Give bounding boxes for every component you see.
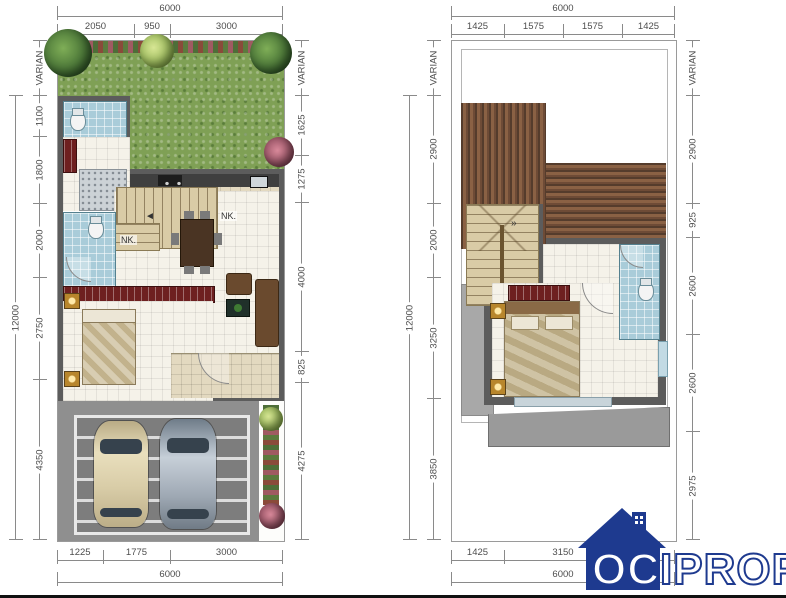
dim-label: 825: [297, 356, 308, 378]
sink-icon: [250, 176, 268, 188]
dim-label: 1575: [521, 21, 546, 32]
dim-segment: 6000: [57, 570, 283, 586]
dim-label: 6000: [550, 569, 575, 580]
gf-dim-top-total: 6000: [57, 4, 283, 20]
wardrobe-strip: [508, 285, 570, 301]
bed: [504, 301, 580, 397]
rear-window: [167, 509, 210, 519]
windshield: [100, 439, 141, 454]
dim-label: 2975: [688, 472, 699, 499]
wardrobe: [63, 139, 77, 173]
dim-label: 2050: [83, 21, 108, 32]
dim-segment: 1425: [622, 22, 675, 38]
dim-segment: 1575: [563, 22, 622, 38]
dim-segment: 2900: [426, 95, 442, 203]
carport: [58, 401, 259, 541]
bed-pillows: [83, 310, 135, 323]
dim-segment: 6000: [451, 4, 675, 20]
dim-segment: 6000: [57, 4, 283, 20]
dim-segment: 1775: [103, 548, 170, 564]
bed-headboard: [505, 302, 579, 314]
dim-label: 1425: [465, 547, 490, 558]
wall: [279, 169, 284, 401]
dim-segment: 3000: [170, 548, 283, 564]
dim-label: 2000: [429, 226, 440, 253]
dim-label: 1625: [297, 111, 308, 138]
stairs-up-label: NK.: [220, 211, 237, 221]
gf-dim-bottom-total: 6000: [57, 570, 283, 586]
dim-label: 2600: [688, 272, 699, 299]
lamp-icon: [64, 371, 80, 387]
dim-segment: 2000: [32, 203, 48, 277]
lamp-icon: [64, 293, 80, 309]
dim-label: 2900: [688, 135, 699, 162]
shrub: [259, 503, 285, 529]
dim-label: 3150: [550, 547, 575, 558]
upper-bathroom: [619, 244, 660, 340]
side-garden: [130, 96, 284, 169]
lamp-icon: [490, 379, 506, 395]
stairs-rail: [500, 225, 504, 285]
ground-floor-plan: ◄ NK. NK.: [57, 40, 285, 542]
dim-segment: 1275: [294, 155, 310, 202]
dim-segment: 12000: [402, 95, 418, 540]
stairs-direction-arrow: ◄: [145, 212, 155, 222]
dim-label: 12000: [11, 301, 22, 333]
dim-segment: 1575: [504, 22, 563, 38]
uf-dim-left-chain: VARIAN 2900 2000 3250 3850: [426, 40, 442, 540]
uf-dim-right-chain: VARIAN 2900 925 2600 2600 2975: [685, 40, 701, 540]
toilet-icon: [638, 281, 654, 301]
dim-label: 1275: [297, 165, 308, 192]
toilet-icon: [88, 219, 104, 239]
chair: [171, 233, 179, 245]
dim-label: 3000: [214, 547, 239, 558]
window: [658, 341, 668, 377]
dim-segment: VARIAN: [294, 40, 310, 95]
uf-dim-top-chain: 1425 1575 1575 1425: [451, 22, 675, 38]
floorplan-sheet: 6000 2050 950 3000 12000 VARIAN 1100 180…: [0, 0, 786, 598]
lamp-icon: [490, 303, 506, 319]
dim-label: 12000: [405, 301, 416, 333]
chair: [200, 266, 210, 274]
dim-label: 2600: [688, 369, 699, 396]
dim-label: 6000: [157, 3, 182, 14]
dim-label: 4350: [35, 446, 46, 473]
bed-pillows: [545, 316, 573, 330]
rear-window: [100, 508, 141, 518]
dim-label: 1225: [67, 547, 92, 558]
dim-label: 2900: [429, 135, 440, 162]
dim-label: 2750: [35, 314, 46, 341]
dim-segment: 1100: [32, 95, 48, 136]
bed: [82, 309, 136, 385]
dim-segment: 12000: [8, 95, 24, 540]
dim-label: 6000: [550, 3, 575, 14]
dim-segment: 2000: [426, 203, 442, 277]
gf-dim-left-total: 12000: [8, 95, 24, 540]
gf-dim-left-chain: VARIAN 1100 1800 2000 2750 4350: [32, 40, 48, 540]
coffee-table: [226, 299, 250, 317]
dim-label: 3000: [214, 21, 239, 32]
stove-icon: [158, 175, 182, 186]
side-planting-strip: [259, 401, 284, 541]
dim-segment: 1425: [451, 548, 504, 564]
dim-segment: 1225: [57, 548, 103, 564]
dim-segment: 2900: [685, 95, 701, 203]
toilet-icon: [70, 111, 86, 131]
dim-label: 1575: [580, 21, 605, 32]
chair: [184, 211, 194, 219]
gf-dim-top-chain: 2050 950 3000: [57, 22, 283, 38]
car-silver: [160, 419, 216, 529]
dim-label: 1775: [124, 547, 149, 558]
chair: [200, 211, 210, 219]
dim-label: 4275: [297, 447, 308, 474]
dim-label: VARIAN: [297, 47, 308, 88]
logo-graphic: OCIPROP: [576, 500, 786, 595]
dim-segment: 1625: [294, 95, 310, 155]
dim-label: 1425: [636, 21, 661, 32]
gf-dim-bottom-chain: 1225 1775 3000: [57, 548, 283, 564]
chair: [214, 233, 222, 245]
dim-segment: 3850: [426, 398, 442, 540]
tree: [250, 32, 292, 74]
dim-segment: 1800: [32, 136, 48, 203]
dim-segment: 4350: [32, 379, 48, 540]
dim-segment: 4275: [294, 382, 310, 540]
bathroom-1: [63, 101, 127, 139]
roof-section-horizontal: [546, 163, 666, 243]
dim-label: 3850: [429, 455, 440, 482]
dim-label: VARIAN: [429, 47, 440, 88]
dim-segment: 2600: [685, 237, 701, 334]
uf-dim-top-total: 6000: [451, 4, 675, 20]
armchair: [226, 273, 252, 295]
shrub: [259, 407, 283, 431]
bed-pillows: [511, 316, 539, 330]
car-beige: [94, 421, 148, 527]
dim-segment: VARIAN: [685, 40, 701, 95]
gf-dim-right-chain: VARIAN 1625 1275 4000 825 4275: [294, 40, 310, 540]
dim-label: VARIAN: [688, 47, 699, 88]
door-arc: [620, 245, 643, 268]
dim-segment: 925: [685, 203, 701, 237]
dim-segment: 825: [294, 351, 310, 382]
window-strip: [514, 397, 612, 407]
dim-segment: VARIAN: [426, 40, 442, 95]
stairs-up-label-2: NK.: [120, 235, 137, 245]
shrub: [264, 137, 294, 167]
dim-segment: 1425: [451, 22, 504, 38]
tree: [140, 34, 174, 68]
dim-label: 1425: [465, 21, 490, 32]
stairs-direction-arrow: »: [511, 219, 517, 229]
dim-segment: 4000: [294, 202, 310, 351]
chair: [184, 266, 194, 274]
uf-dim-left-total: 12000: [402, 95, 418, 540]
tree: [44, 29, 92, 77]
dim-segment: 3250: [426, 277, 442, 398]
dim-label: 6000: [157, 569, 182, 580]
sofa: [255, 279, 279, 347]
logo: OCIPROP: [576, 500, 786, 595]
upper-floor-plan: » TR.: [451, 40, 677, 542]
windshield: [167, 438, 210, 453]
door-arc: [66, 257, 91, 282]
logo-text: OCIPROP: [592, 545, 786, 594]
dim-label: 2000: [35, 226, 46, 253]
dim-label: 1800: [35, 156, 46, 183]
dim-segment: 2600: [685, 334, 701, 431]
dining-table: [180, 219, 214, 267]
dim-label: 3250: [429, 324, 440, 351]
dim-label: 1100: [35, 102, 46, 128]
dim-label: 4000: [297, 263, 308, 290]
dim-label: 950: [142, 21, 162, 32]
dim-label: 925: [688, 209, 699, 231]
plant-icon: [234, 304, 242, 312]
dim-segment: 2750: [32, 277, 48, 379]
